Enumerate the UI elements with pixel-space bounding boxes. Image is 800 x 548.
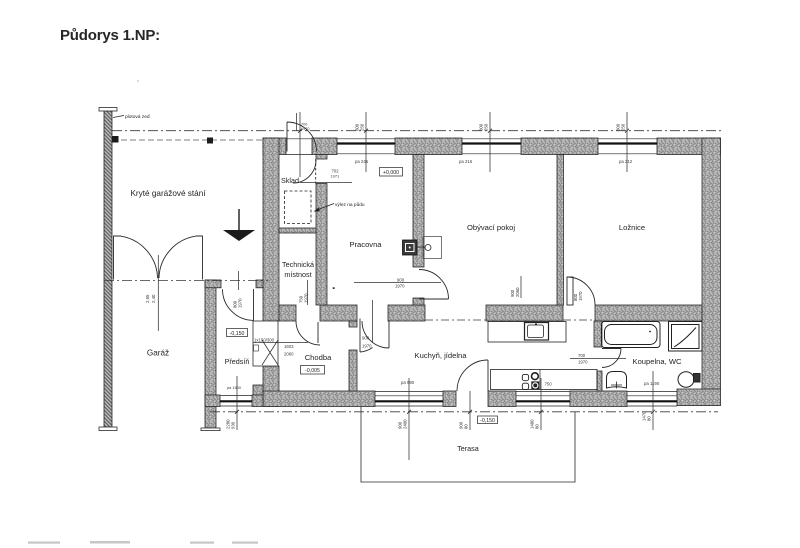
svg-text:1971: 1971 (331, 174, 340, 179)
svg-text:místnost: místnost (284, 270, 311, 279)
svg-text:Kuchyň, jídelna: Kuchyň, jídelna (415, 351, 468, 360)
svg-text:1603: 1603 (284, 344, 294, 349)
svg-text:výlez na půdu: výlez na půdu (335, 201, 365, 208)
svg-text:700: 700 (301, 123, 307, 127)
svg-text:pa 990: pa 990 (401, 380, 415, 385)
svg-text:Terasa: Terasa (457, 444, 479, 453)
svg-text:930: 930 (231, 421, 236, 429)
svg-text:Předsíň: Předsíň (225, 357, 250, 366)
svg-text:1970: 1970 (238, 298, 243, 308)
svg-text:2060: 2060 (515, 287, 520, 297)
svg-text:80: 80 (464, 424, 469, 429)
svg-text:250: 250 (360, 123, 365, 131)
svg-text:Ložnice: Ložnice (619, 223, 645, 232)
svg-text:-0,005: -0,005 (305, 368, 320, 374)
svg-text:1970: 1970 (578, 291, 583, 301)
svg-text:Sklad: Sklad (281, 176, 299, 185)
svg-text:Koupelna, WC: Koupelna, WC (633, 357, 682, 366)
svg-text:-0,150: -0,150 (480, 418, 495, 424)
svg-text:250: 250 (484, 123, 489, 131)
svg-text:pa 212: pa 212 (619, 159, 633, 164)
svg-text:1970: 1970 (395, 284, 405, 289)
svg-text:pa 216: pa 216 (459, 159, 473, 164)
svg-text:Garáž: Garáž (147, 349, 169, 358)
svg-text:2,40: 2,40 (151, 294, 156, 303)
svg-text:1970: 1970 (362, 344, 372, 349)
svg-text:2,65: 2,65 (145, 294, 150, 303)
svg-text:1970: 1970 (578, 360, 588, 365)
svg-text:2060: 2060 (284, 352, 294, 357)
svg-text:2400: 2400 (403, 419, 408, 429)
svg-text:80: 80 (535, 424, 540, 429)
svg-text:Obývací pokoj: Obývací pokoj (467, 223, 515, 232)
svg-text:250: 250 (621, 123, 626, 131)
svg-text:1970: 1970 (304, 293, 309, 303)
svg-text:Pracovna: Pracovna (349, 240, 382, 249)
svg-text:80: 80 (647, 416, 652, 421)
svg-text:1970: 1970 (301, 127, 309, 131)
svg-text:Chodba: Chodba (305, 353, 332, 362)
svg-text:Kryté garážové stání: Kryté garážové stání (130, 189, 206, 198)
svg-text:pa 1190: pa 1190 (644, 381, 660, 386)
svg-text:Technická: Technická (282, 260, 314, 269)
svg-text:pa 1500: pa 1500 (227, 385, 242, 390)
svg-text:900: 900 (397, 278, 405, 283)
svg-text:900: 900 (362, 336, 370, 341)
svg-text:pa 245: pa 245 (355, 159, 369, 164)
svg-text:700: 700 (578, 353, 586, 358)
svg-text:plotová zeď: plotová zeď (125, 114, 150, 120)
svg-text:750: 750 (545, 382, 553, 387)
svg-text:+0,000: +0,000 (383, 170, 399, 176)
svg-text:-0,150: -0,150 (230, 331, 245, 337)
svg-text:1x150/300: 1x150/300 (254, 338, 275, 343)
